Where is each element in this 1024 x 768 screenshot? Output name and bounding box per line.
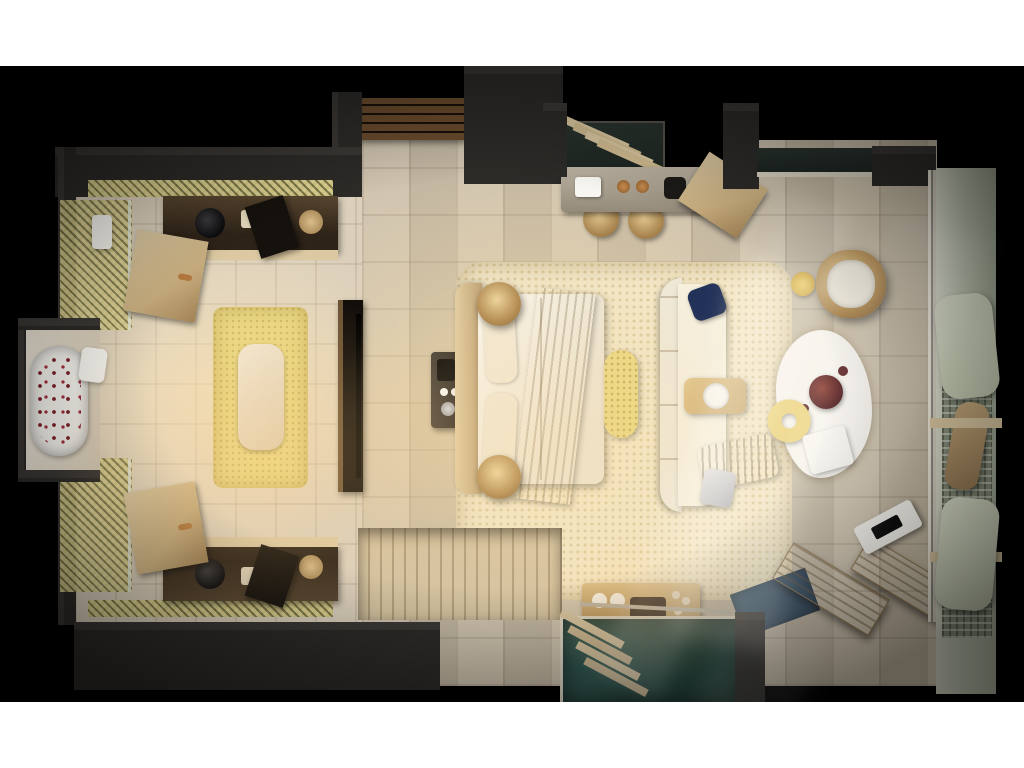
egg-chair-cushion (827, 260, 875, 308)
tub-side-stool (78, 346, 108, 383)
dressing-bench (238, 344, 284, 450)
wall-stub-desk-right (723, 103, 759, 189)
door-handle-copper (178, 273, 193, 281)
rattan-pendant-lamp (477, 282, 521, 326)
espresso-machine (437, 359, 455, 381)
wall-stub-desk-left (543, 103, 567, 177)
silver-tray (699, 467, 737, 508)
wood-deck-walkway (358, 528, 562, 620)
mosaic-band-bottom (88, 600, 333, 617)
entry-wood-mat (357, 98, 464, 140)
kettle (441, 402, 455, 416)
cup (440, 388, 448, 396)
shower-control-panel (92, 215, 112, 249)
rose-petals (37, 356, 81, 446)
wall-stub-glass (872, 146, 936, 186)
page: { "scene": { "type": "3d-floor-plan-rend… (0, 0, 1024, 768)
tv-screen (356, 314, 361, 478)
bottle (682, 597, 690, 605)
coffee-cup (636, 180, 649, 193)
dark-bowl (195, 208, 225, 238)
rattan-pendant-lamp (477, 455, 521, 499)
tv-partition (338, 300, 363, 492)
tub-alcove-top-wall (18, 318, 100, 330)
hanging-egg-chair (816, 250, 886, 318)
wardrobe-door-bottom (123, 481, 208, 574)
magazine-cover (871, 514, 904, 540)
sun-hat (791, 272, 815, 296)
daybed-upper (933, 291, 1002, 400)
flower-vase (809, 375, 843, 409)
outdoor-gallery (936, 168, 996, 694)
foot-bench (604, 350, 638, 438)
plunge-pool (560, 616, 746, 702)
vanity-basket (299, 555, 323, 579)
bottle (672, 591, 680, 599)
door-handle-copper (178, 523, 193, 531)
desk-tray (575, 177, 601, 197)
bathroom-bottom-wall (74, 622, 440, 690)
plate (703, 383, 729, 409)
mosaic-band-top (88, 180, 333, 197)
gallery-mullion-bar (930, 418, 1002, 428)
vanity-basket (299, 210, 323, 234)
render-matte (0, 66, 1024, 702)
pool-side-wall-stub (735, 612, 765, 702)
wardrobe-door-top (123, 229, 208, 322)
flower-sprig (838, 366, 848, 376)
daybed-lower (933, 496, 1001, 613)
tub-alcove-bottom-wall (18, 470, 100, 482)
tray-table (684, 378, 746, 414)
coffee-cup (617, 180, 630, 193)
